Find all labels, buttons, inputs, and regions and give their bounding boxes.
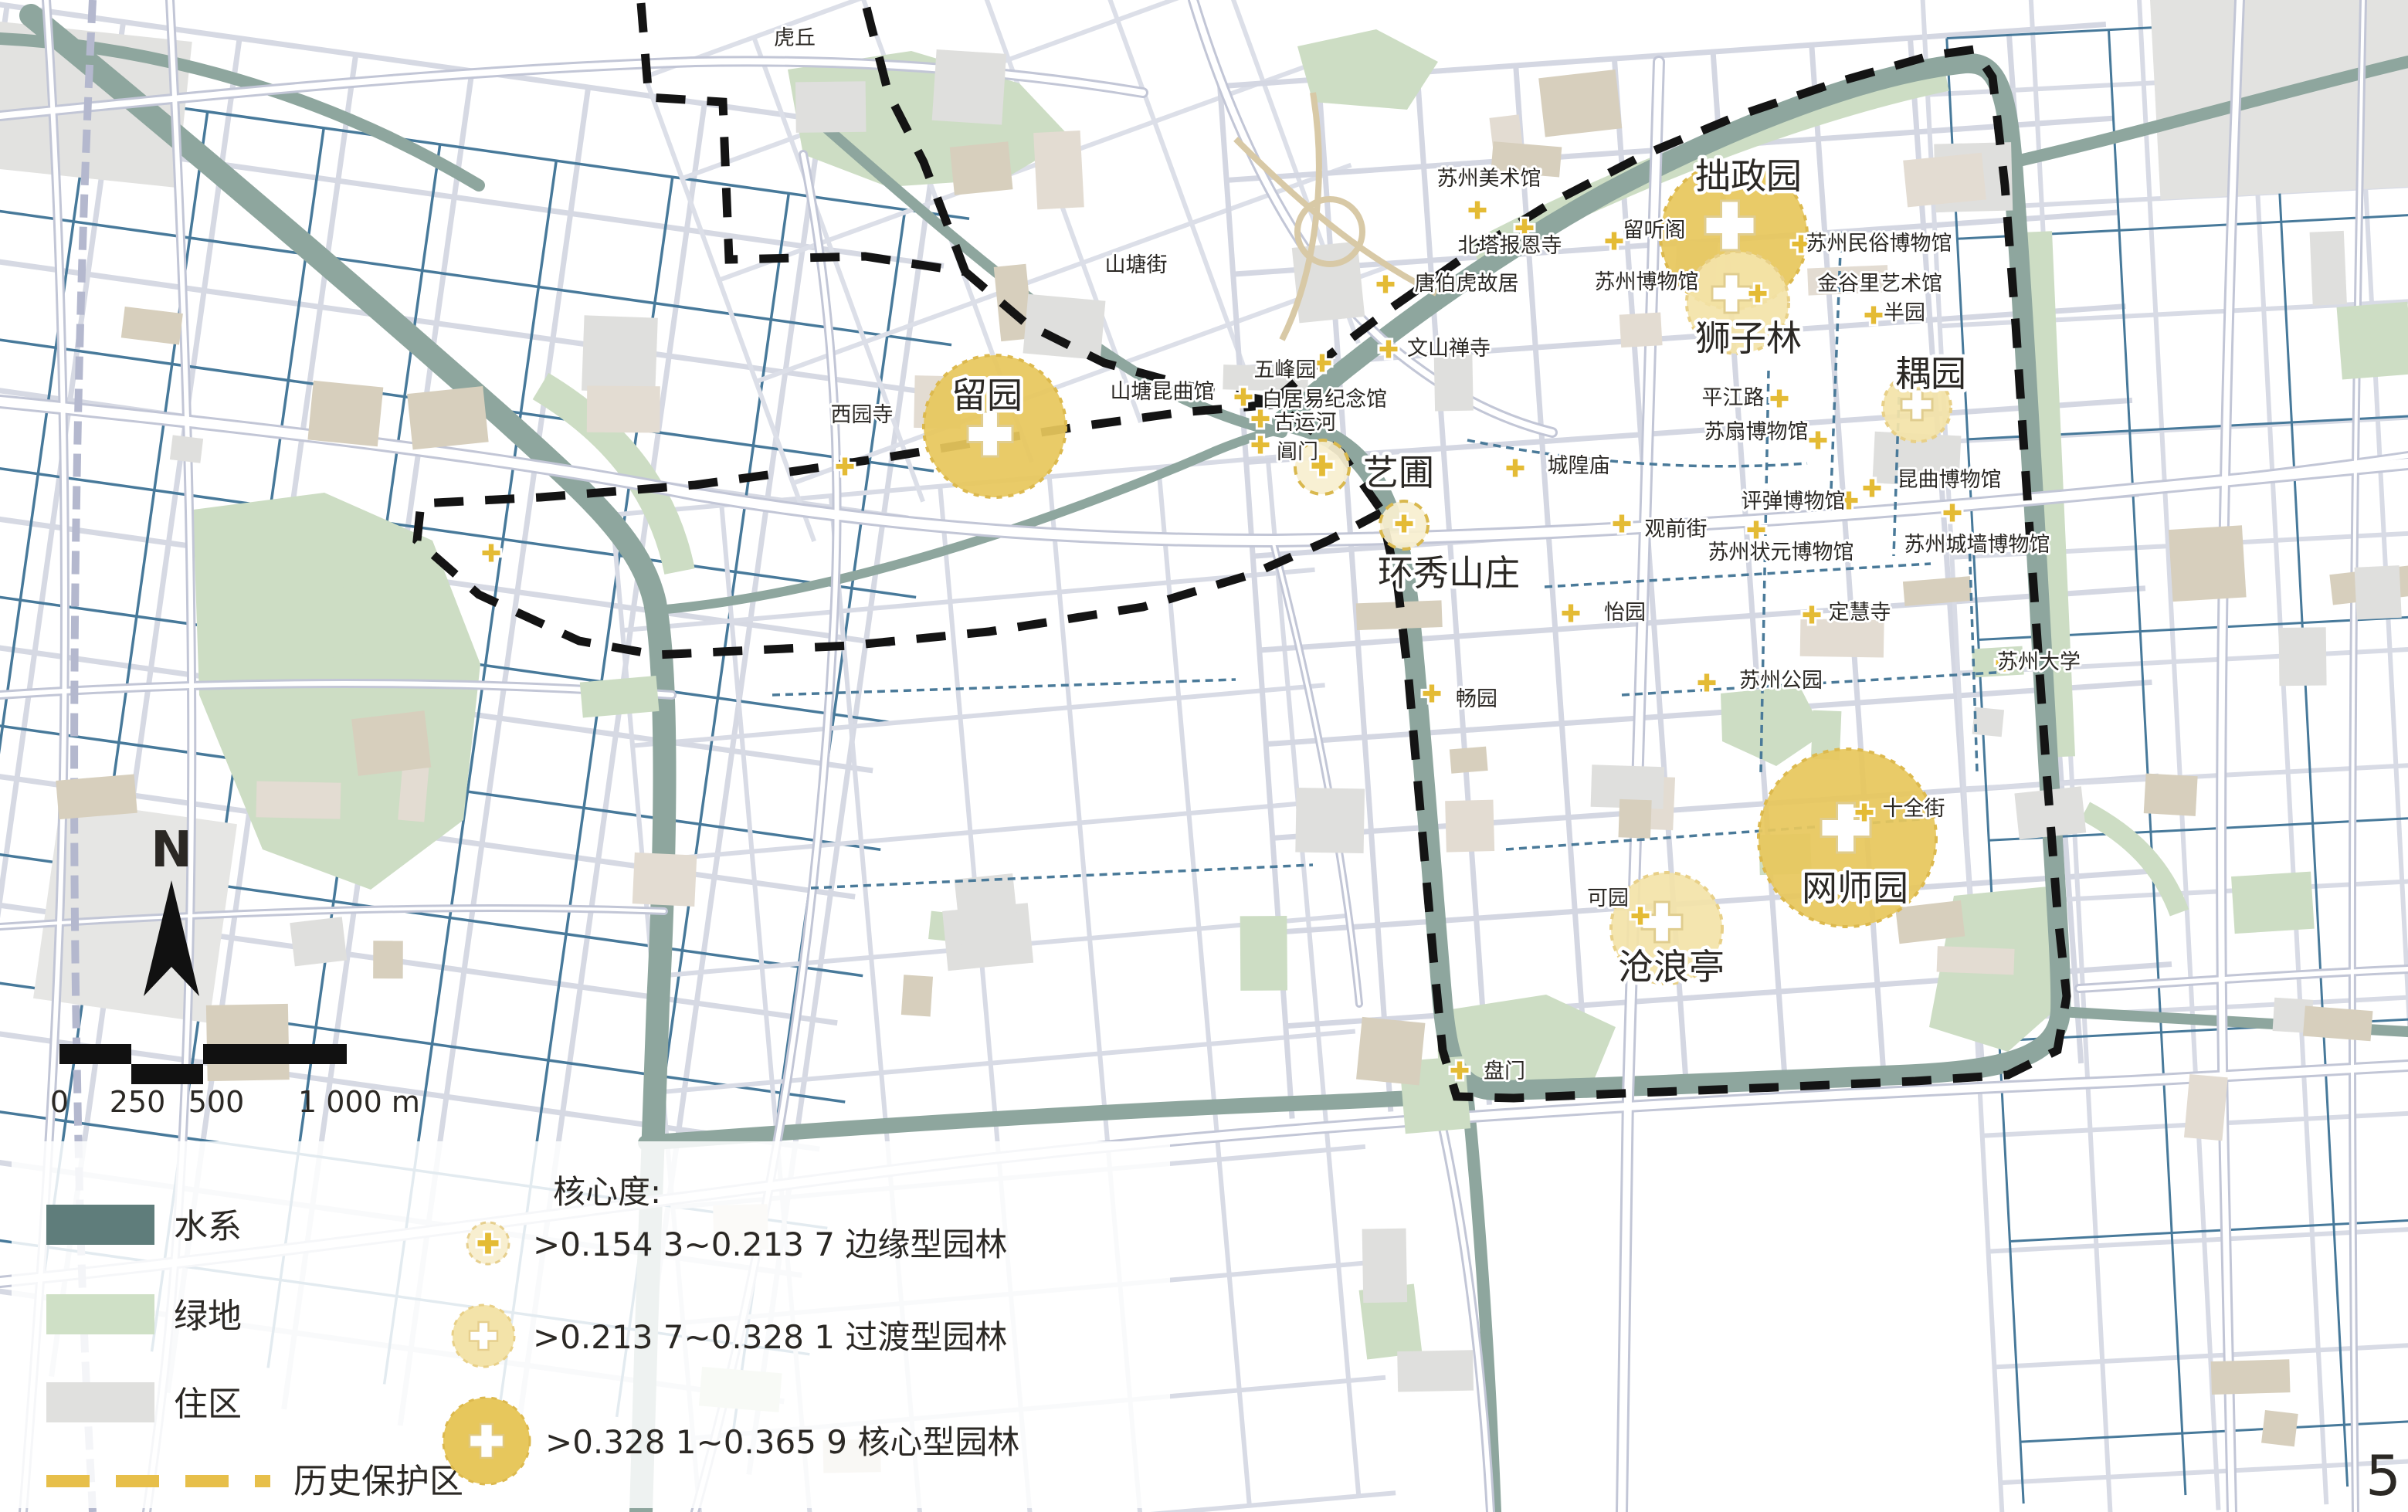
building-patch [950,141,1013,195]
building-patch [932,49,1006,125]
building-patch [901,975,933,1016]
building-patch [1445,800,1494,853]
building-patch [2169,525,2247,602]
building-patch [1903,153,1986,208]
scale-tick-1000: 1 000 m [298,1085,420,1119]
building-patch [2231,872,2315,934]
site-label: 苏州博物馆 [1595,270,1699,294]
building-patch [1618,799,1651,839]
building-patch [580,676,660,718]
site-label: 苏扇博物馆 [1704,420,1809,444]
building-patch [398,765,429,822]
legend: 水系 绿地 住区 历史保护区 核心度: >0.154 3~0.213 7 边缘型… [12,1141,1170,1508]
building-patch [1356,1017,1425,1086]
building-patch [121,307,183,345]
site-label: 怡园 [1604,601,1646,625]
site-label: 十全街 [1883,797,1945,821]
garden-label: 沧浪亭 [1618,946,1725,988]
building-patch [2184,1074,2228,1141]
building-patch [1538,69,1622,137]
site-label: 苏州美术馆 [1437,167,1541,191]
scale-tick-250: 250 [110,1085,166,1119]
site-label: 阊门 [1277,440,1318,464]
building-patch [2279,627,2327,686]
building-patch [373,941,403,978]
site-label: 半园 [1884,301,1925,325]
legend-label-water: 水系 [174,1207,242,1246]
building-patch [1619,313,1663,348]
site-label: 可园 [1587,887,1629,910]
building-patch [307,381,383,446]
figure-page: 拙政园狮子林耦园留园网师园沧浪亭艺圃环秀山庄虎丘山塘街苏州美术馆北塔报恩寺留听阁… [0,0,2408,1512]
site-label: 苏州民俗博物馆 [1806,232,1952,256]
site-label: 山塘昆曲馆 [1111,380,1215,404]
coreness-label-edge: >0.154 3~0.213 7 边缘型园林 [533,1226,1007,1263]
site-cross-icon [1375,274,1396,294]
site-cross-icon [1467,200,1487,220]
legend-swatch-residential [46,1382,154,1422]
site-label: 西园寺 [831,403,894,427]
site-label: 平江路 [1702,386,1765,410]
scale-tick-500: 500 [188,1085,245,1119]
building-patch [1240,916,1287,991]
building-patch [1362,1229,1408,1304]
site-cross-icon [1808,430,1828,450]
site-label: 文山禅寺 [1407,337,1491,361]
building-patch [351,710,431,776]
scale-bar: 0 250 500 1 000 m [50,1044,420,1119]
building-patch [170,435,203,463]
building-patch [407,386,488,449]
building-patch [1972,707,2005,737]
building-patch [1023,294,1106,360]
legend-label-historic: 历史保护区 [293,1462,463,1501]
north-label: N [151,822,192,879]
building-patch [1033,131,1084,209]
coreness-row-edge: >0.154 3~0.213 7 边缘型园林 [467,1222,1007,1264]
legend-label-residential: 住区 [174,1385,242,1424]
garden-label: 环秀山庄 [1378,552,1520,594]
legend-swatch-green [46,1294,154,1334]
site-label: 留听阁 [1623,219,1686,242]
site-label: 昆曲博物馆 [1898,468,2002,492]
site-label: 唐伯虎故居 [1415,272,1519,296]
garden-label: 狮子林 [1695,317,1802,359]
garden-label: 留园 [951,375,1023,416]
building-patch [2355,565,2402,619]
coreness-label-core: >0.328 1~0.365 9 核心型园林 [545,1423,1019,1461]
legend-swatch-water [46,1205,154,1245]
site-cross-icon [1769,388,1789,409]
building-patch [1434,354,1474,411]
coreness-title: 核心度: [553,1173,661,1211]
site-label: 苏州公园 [1739,669,1823,693]
site-label: 盘门 [1484,1059,1525,1083]
site-label: 评弹博物馆 [1742,490,1846,514]
site-label: 观前街 [1645,517,1708,541]
site-cross-icon [1505,458,1525,478]
building-patch [2211,1359,2291,1395]
coreness-label-transition: >0.213 7~0.328 1 过渡型园林 [533,1318,1007,1356]
building-patch [633,853,697,907]
site-label: 山塘街 [1105,253,1168,277]
building-patch [795,81,866,133]
building-patch [2337,302,2408,380]
garden-label: 拙政园 [1695,155,1802,197]
building-patch [587,386,660,433]
site-label: 古运河 [1274,411,1337,435]
suzhou-gardens-map: 拙政园狮子林耦园留园网师园沧浪亭艺圃环秀山庄虎丘山塘街苏州美术馆北塔报恩寺留听阁… [0,0,2408,1512]
building-patch [206,1004,290,1081]
page-number: 5 [2366,1443,2401,1508]
building-patch [1937,946,2015,975]
site-label: 城隍庙 [1548,454,1610,478]
site-label: 定慧寺 [1829,601,1891,625]
site-label: 苏州城墙博物馆 [1904,533,2050,557]
building-patch [2310,231,2347,306]
site-label: 白居易纪念馆 [1262,388,1387,412]
legend-label-green: 绿地 [174,1297,242,1336]
garden-label: 耦园 [1895,353,1966,395]
scale-tick-0: 0 [50,1085,69,1119]
building-patch [290,917,347,966]
site-cross-icon [481,543,501,563]
building-patch [955,873,1020,948]
building-patch [315,581,401,659]
building-patch [1295,788,1365,853]
building-patch [256,781,341,819]
garden-label: 网师园 [1802,867,1908,909]
site-label: 虎丘 [774,26,816,50]
site-label: 北塔报恩寺 [1458,234,1562,258]
site-label: 苏州大学 [1997,650,2081,674]
building-patch [1397,1350,1474,1392]
garden-label: 艺圃 [1363,452,1434,493]
building-patch [56,774,137,819]
building-patch [1450,747,1488,774]
site-cross-icon [1561,603,1581,623]
building-patch [2261,1410,2298,1446]
site-label: 苏州状元博物馆 [1708,541,1854,564]
site-label: 五峰园 [1254,358,1317,382]
site-label: 金谷里艺术馆 [1817,272,1942,296]
building-patch [582,315,658,393]
site-label: 畅园 [1456,687,1497,711]
building-patch [2303,1006,2373,1042]
building-patch [2144,774,2198,816]
